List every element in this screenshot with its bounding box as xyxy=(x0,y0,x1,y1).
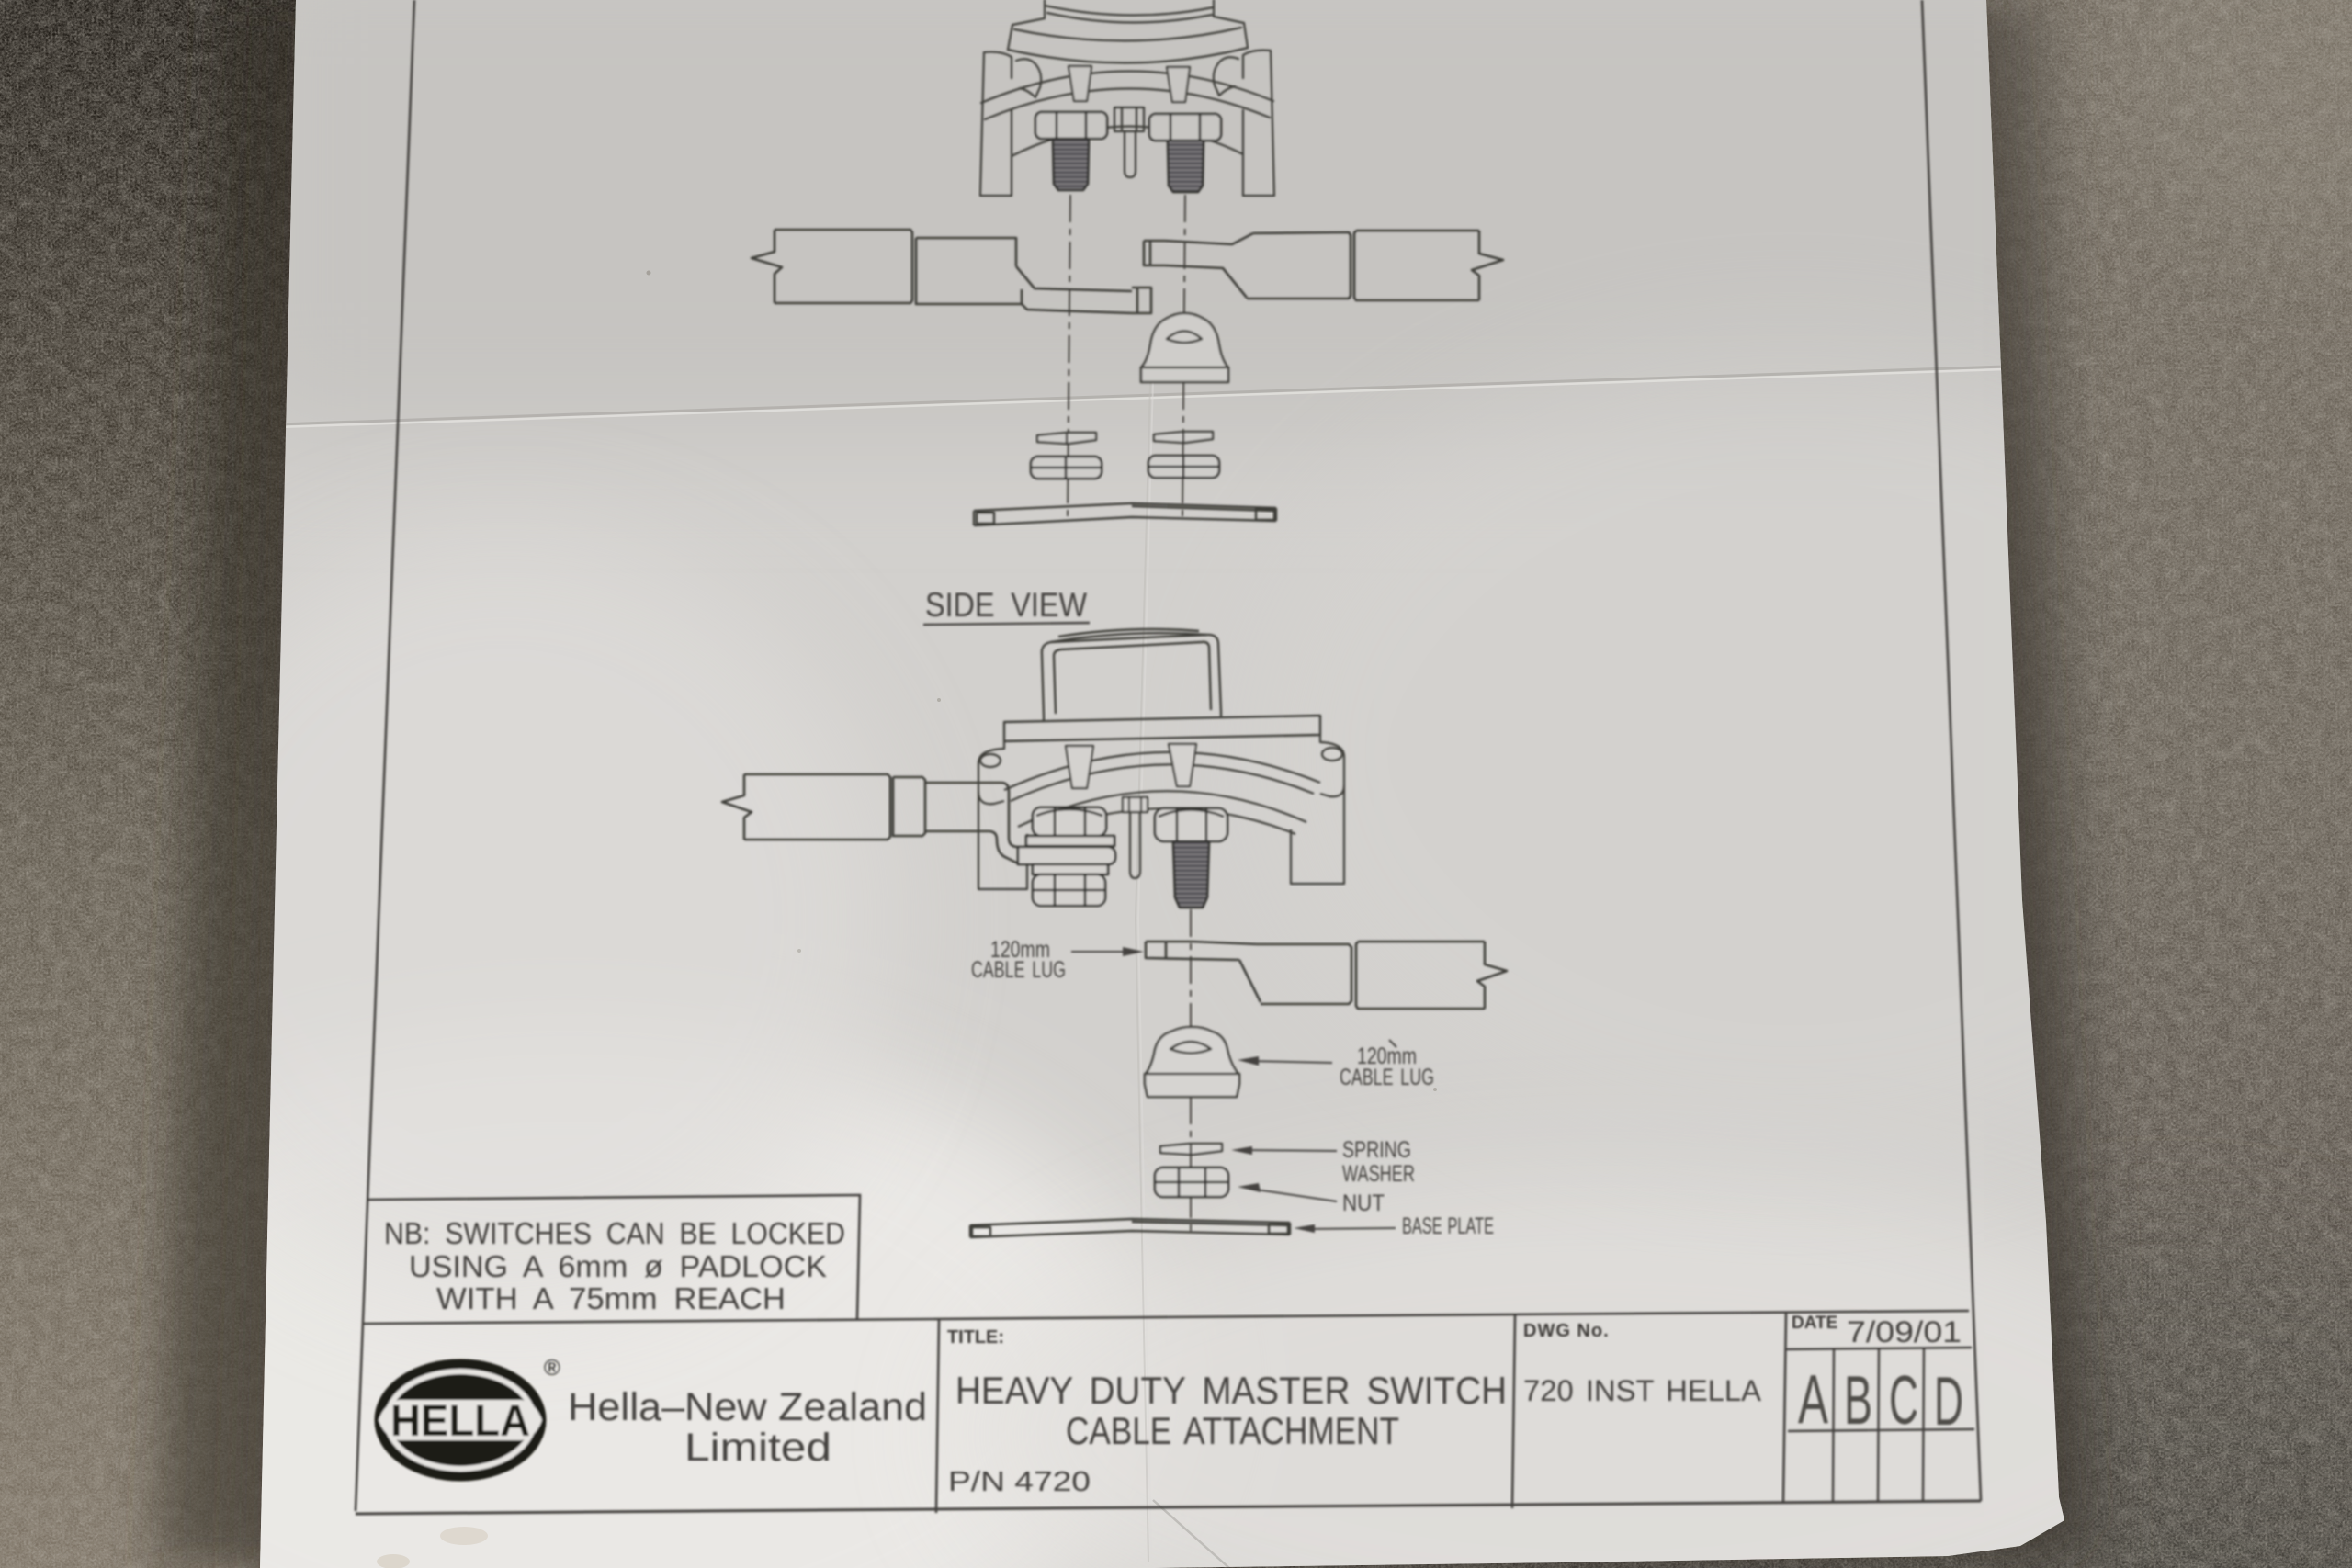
svg-text:D: D xyxy=(1934,1362,1963,1439)
svg-text:A: A xyxy=(1798,1360,1828,1438)
svg-text:P/N 4720: P/N 4720 xyxy=(948,1465,1091,1497)
svg-text:NB: SWITCHES CAN BE LOCKED: NB: SWITCHES CAN BE LOCKED xyxy=(384,1216,845,1250)
svg-text:DATE: DATE xyxy=(1792,1314,1837,1333)
svg-text:USING A 6mm ø PADLOCK: USING A 6mm ø PADLOCK xyxy=(409,1249,827,1283)
svg-text:NUT: NUT xyxy=(1342,1190,1385,1216)
svg-text:DWG No.: DWG No. xyxy=(1523,1321,1610,1341)
svg-text:HEAVY DUTY MASTER SWITCH: HEAVY DUTY MASTER SWITCH xyxy=(955,1369,1507,1412)
svg-text:BASE PLATE: BASE PLATE xyxy=(1402,1213,1494,1239)
svg-text:CABLE ATTACHMENT: CABLE ATTACHMENT xyxy=(1066,1409,1399,1452)
svg-text:Limited: Limited xyxy=(684,1426,831,1470)
svg-text:SIDE VIEW: SIDE VIEW xyxy=(925,586,1087,624)
svg-text:720 INST HELLA: 720 INST HELLA xyxy=(1523,1374,1762,1407)
svg-text:TITLE:: TITLE: xyxy=(947,1327,1004,1348)
svg-text:WITH A 75mm REACH: WITH A 75mm REACH xyxy=(436,1281,786,1315)
svg-text:Hella–New Zealand: Hella–New Zealand xyxy=(568,1385,927,1429)
svg-text:7/09/01: 7/09/01 xyxy=(1847,1315,1962,1348)
svg-text:WASHER: WASHER xyxy=(1342,1161,1415,1187)
svg-text:SPRING: SPRING xyxy=(1342,1137,1411,1163)
svg-text:HELLA: HELLA xyxy=(390,1397,530,1446)
svg-text:CABLE LUG: CABLE LUG xyxy=(1340,1065,1434,1090)
svg-text:C: C xyxy=(1889,1361,1918,1438)
svg-text:®: ® xyxy=(544,1356,560,1381)
svg-text:B: B xyxy=(1844,1361,1872,1438)
svg-text:CABLE LUG: CABLE LUG xyxy=(971,957,1066,983)
